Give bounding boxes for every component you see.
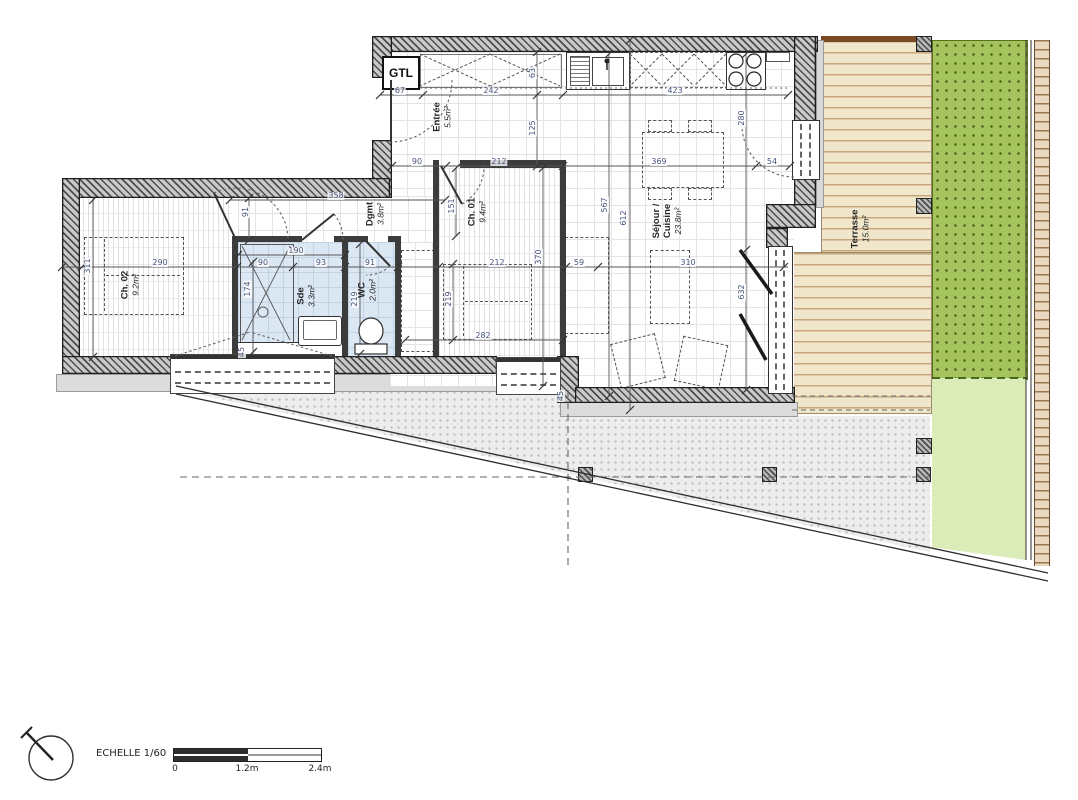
wall-right-mid [794,176,816,206]
chair [648,188,672,200]
bed-ch02 [84,237,184,315]
wall-bottom-sejour [575,387,795,403]
partition-wc-top [388,236,401,242]
bed-ch02-pillow-line [104,239,105,311]
window-dash [175,371,330,373]
partition-wc-east [395,242,401,356]
scale-tick-2: 2.4m [308,764,331,774]
bed-ch01-mid-line [465,301,528,302]
gtl-box: GTL [382,56,420,90]
door-panel-dash [800,124,802,176]
wall-top [372,36,818,52]
terrace-deck [821,40,932,254]
door-panel-dash [809,124,811,176]
bathroom-sink-basin [303,320,337,340]
floor-wc [348,242,395,356]
sofa [650,250,690,324]
wall-right-upper [794,36,816,122]
window-dash [175,382,330,384]
wall-bottom-left [62,356,172,374]
wall-right-step-v [766,228,788,248]
kitchen-cabinets [630,52,728,88]
fence-post [916,438,932,454]
fence-post [916,36,932,52]
wall-bottom-mid [331,356,497,374]
wall-left [62,178,80,374]
cooktop [726,52,766,90]
sink-basin [592,57,624,86]
gtl-label: GTL [389,66,413,80]
window-dash [501,384,556,386]
partition-sde-top2 [334,236,368,242]
bed-ch01-pillow-line [463,266,464,336]
north-compass-icon [21,727,73,780]
sink-drainer [570,56,590,86]
shower-tray [240,244,294,344]
chair [648,120,672,132]
door-panel-dash [775,250,777,390]
terrace-edge [821,36,918,42]
scale-label: ECHELLE 1/60 [96,748,166,759]
partition-sde-top [232,236,302,242]
partition-ch01-west [433,160,439,356]
scale-bar [173,748,322,762]
scale-tick-1: 1.2m [235,764,258,774]
door-panel-dash [783,250,785,390]
bed-ch01 [443,264,532,340]
wall-right-step-h [766,204,816,228]
window-ch02 [170,354,335,394]
entry-closet [420,54,562,88]
dining-table [642,132,724,188]
chair [688,188,712,200]
partition-ch01-east [560,160,566,356]
tv-unit [565,237,609,334]
bed-ch02-mid-line [106,275,180,276]
dgmt-closet [401,250,435,352]
terrace-deck-lower [790,252,932,414]
window-sill-bar [171,355,334,359]
chair [688,120,712,132]
window-ch01 [496,357,561,395]
kitchen-end-unit [766,52,790,62]
sliding-bay-panel [768,246,793,394]
scale-bar-dark [174,749,248,761]
floor-plan: GTL [0,0,1078,800]
wall-topleft [62,178,390,198]
gravel-post [762,467,777,482]
fence-post [916,198,932,214]
partition-ch01-top [460,160,566,168]
scale-tick-0: 0 [172,764,178,774]
scale-bar-light [248,749,322,761]
window-sill-bar [497,358,560,362]
garden-grass-light [932,378,1026,560]
partition-sde-wc [342,242,348,356]
armchair [674,336,729,391]
gravel-area [178,388,930,583]
boundary-fence [1034,40,1050,566]
exterior-ledge [560,402,798,417]
terrace-door-panel [792,120,820,180]
gravel-post [578,467,593,482]
gravel-post [916,467,931,482]
garden-grass [932,40,1028,380]
window-dash [501,373,556,375]
partition-ch02-east [232,240,238,356]
